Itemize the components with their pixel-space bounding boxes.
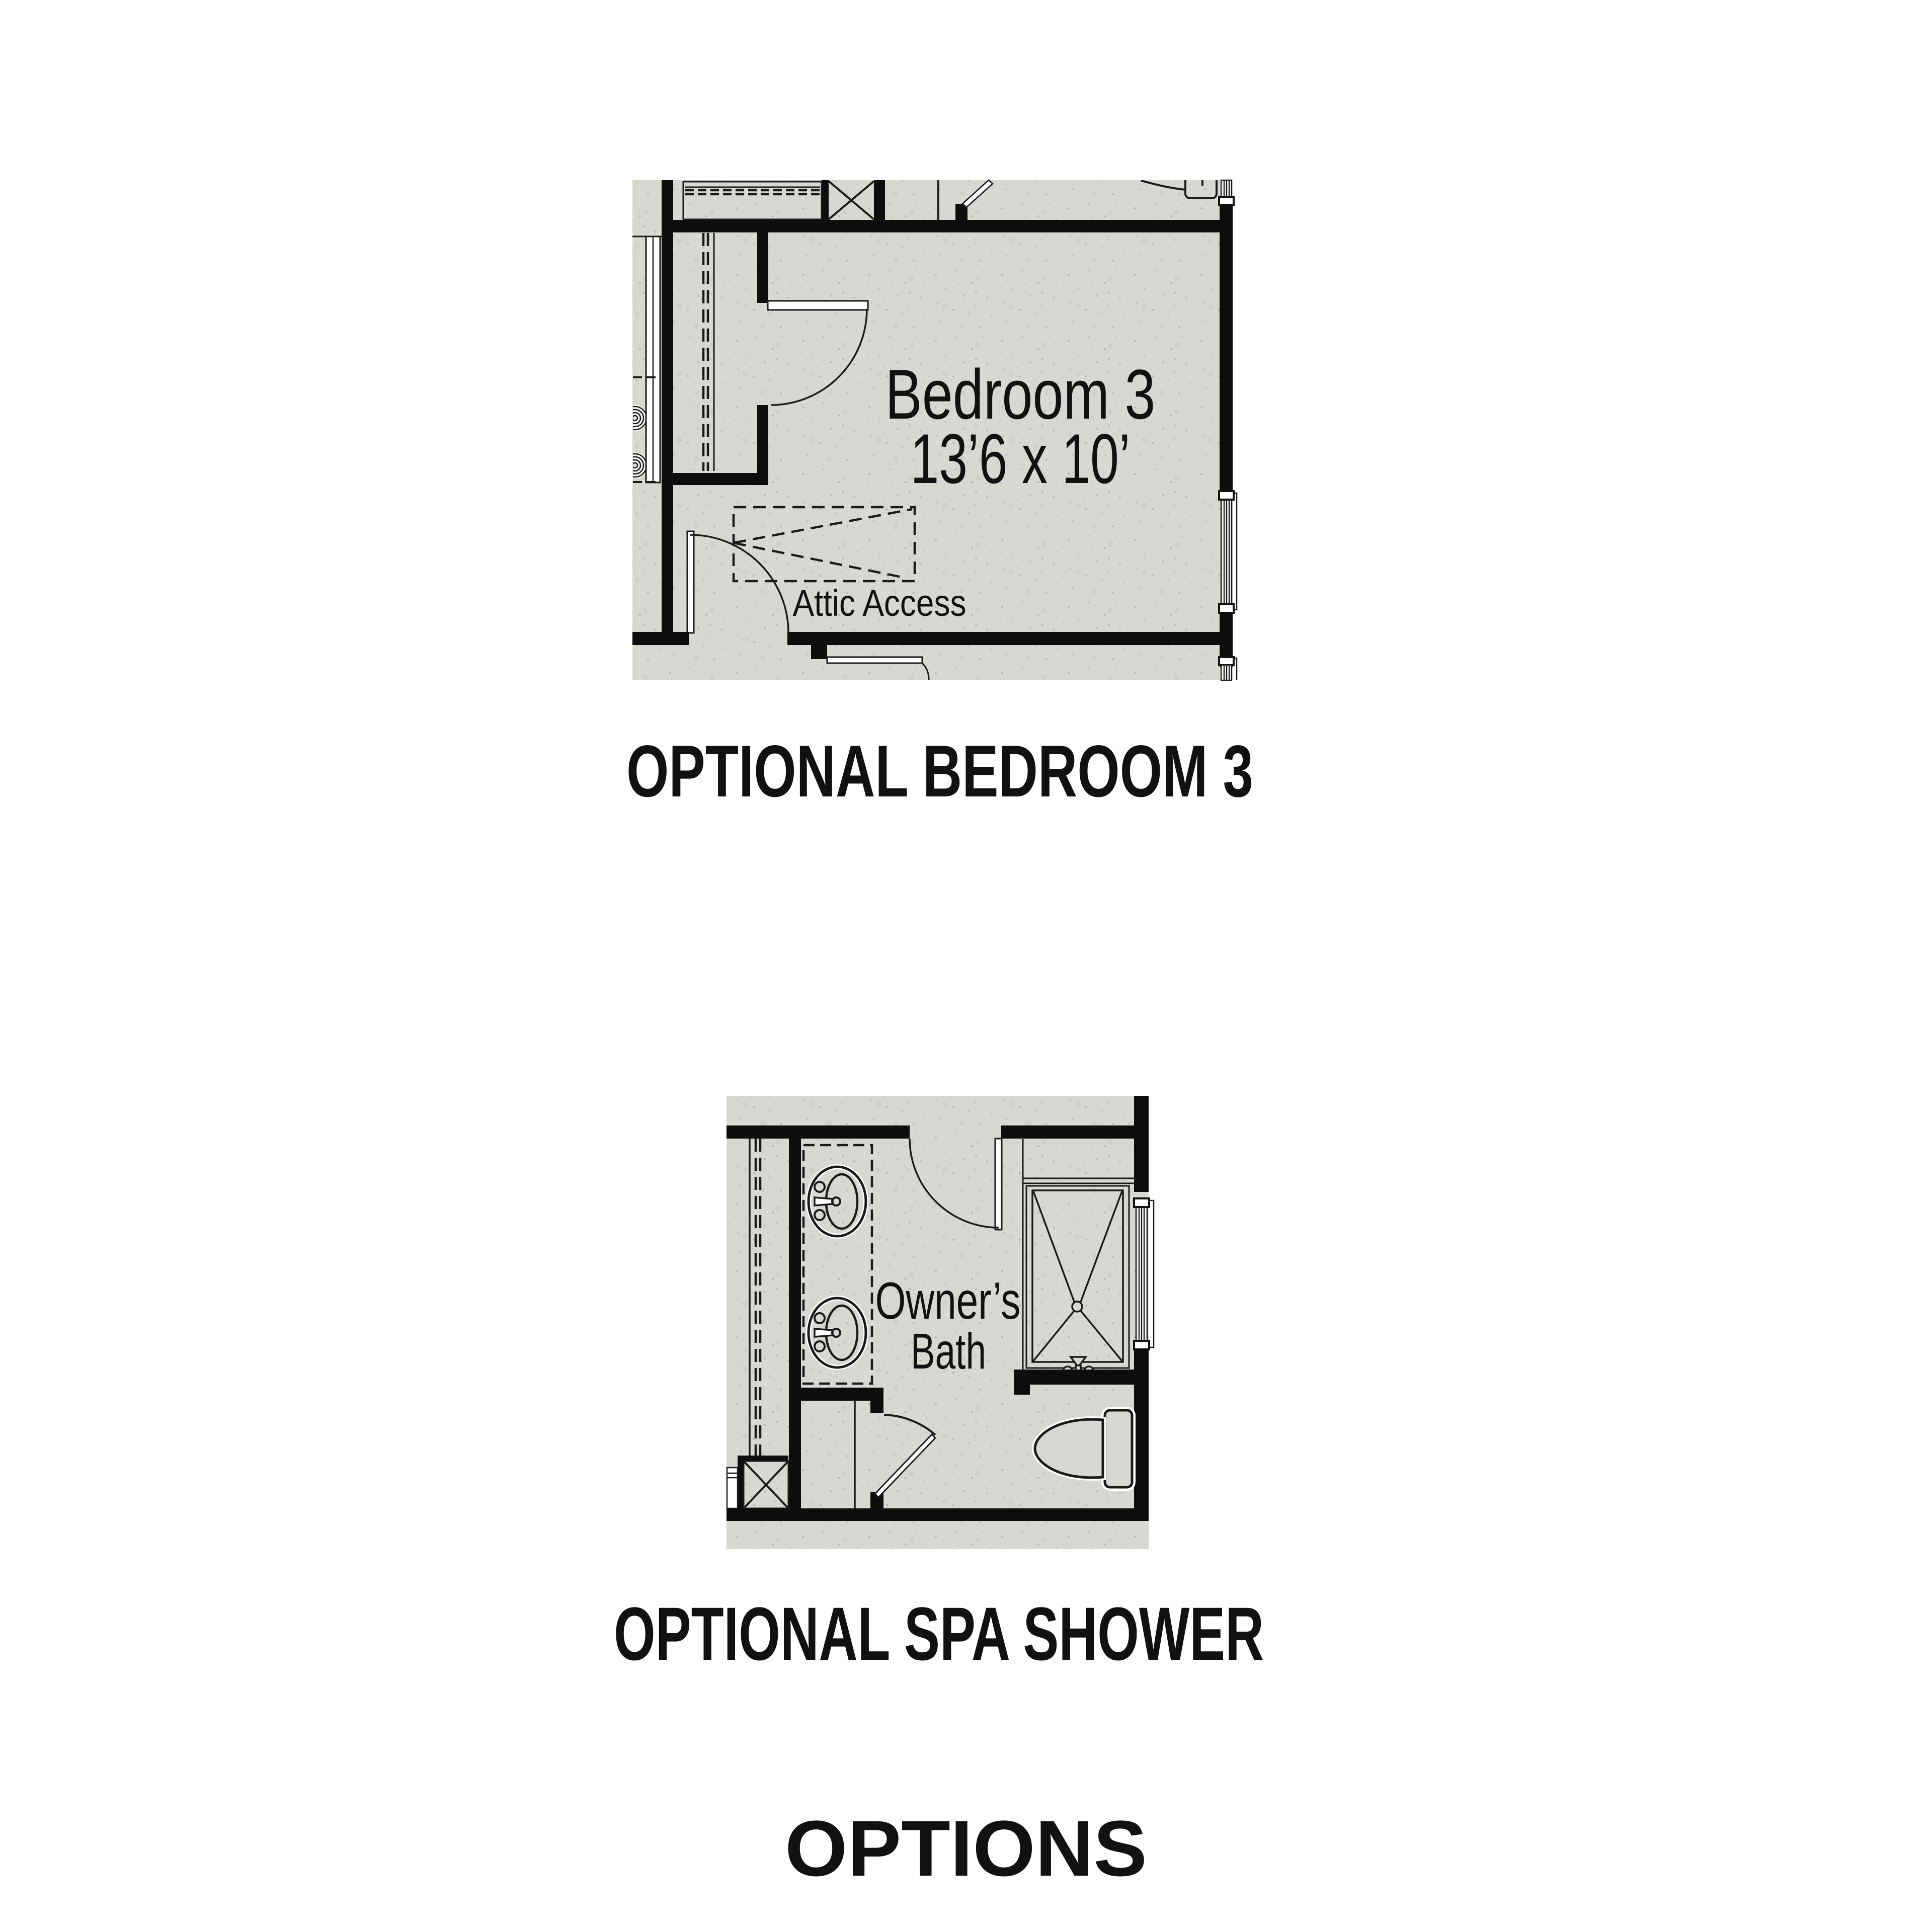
svg-text:13’6 x 10’: 13’6 x 10’ bbox=[911, 419, 1131, 498]
svg-text:Bath: Bath bbox=[911, 1323, 986, 1380]
svg-text:Attic Access: Attic Access bbox=[793, 582, 967, 624]
svg-text:OPTIONS: OPTIONS bbox=[785, 1805, 1147, 1893]
svg-text:OPTIONAL BEDROOM 3: OPTIONAL BEDROOM 3 bbox=[626, 730, 1253, 812]
svg-text:Owner’s: Owner’s bbox=[875, 1272, 1021, 1330]
svg-text:OPTIONAL SPA SHOWER: OPTIONAL SPA SHOWER bbox=[614, 1591, 1264, 1676]
